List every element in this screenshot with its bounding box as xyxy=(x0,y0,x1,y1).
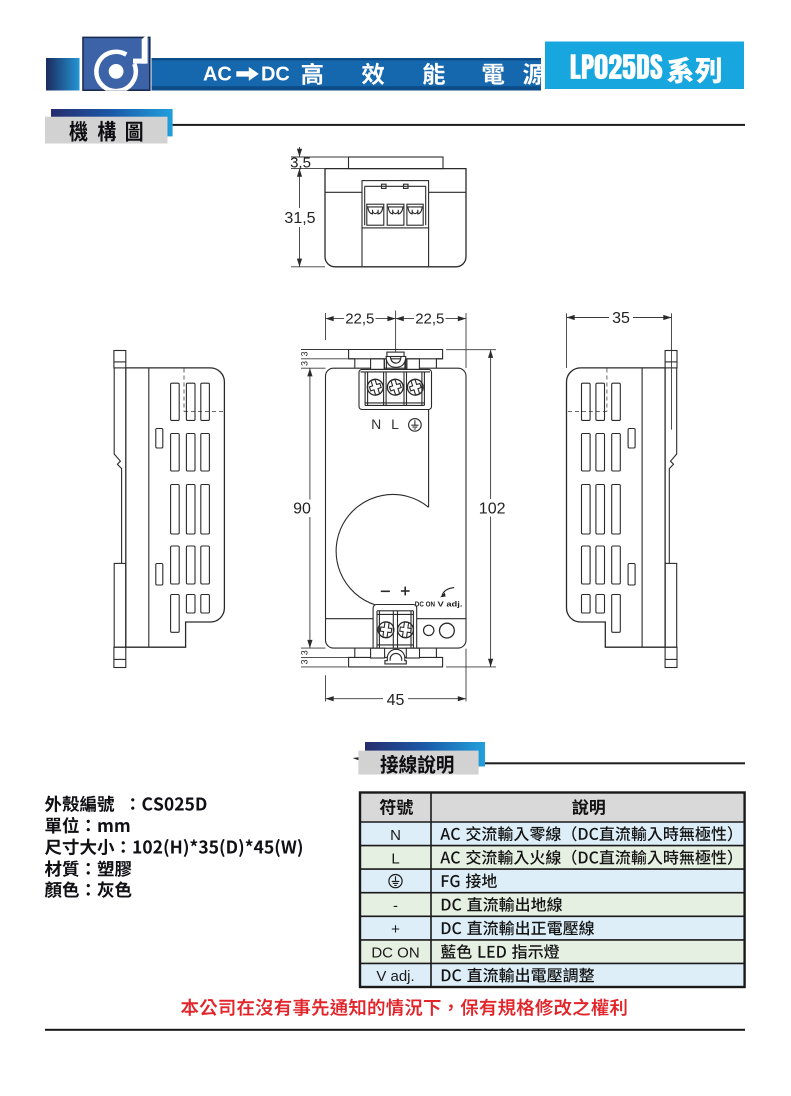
svg-text:3: 3 xyxy=(300,361,310,366)
svg-text:+: + xyxy=(391,921,400,938)
svg-text:102: 102 xyxy=(479,501,506,518)
svg-text:V adj.: V adj. xyxy=(438,599,463,608)
svg-text:22,5: 22,5 xyxy=(415,310,444,327)
svg-text:31,5: 31,5 xyxy=(284,210,315,227)
svg-text:90: 90 xyxy=(293,501,311,518)
svg-text:3: 3 xyxy=(300,351,310,356)
svg-text:AC: AC xyxy=(203,63,232,85)
svg-text:35: 35 xyxy=(612,310,630,327)
svg-text:DC: DC xyxy=(261,63,290,85)
svg-text:N: N xyxy=(390,827,401,844)
svg-text:V adj.: V adj. xyxy=(376,968,414,985)
svg-text:N: N xyxy=(371,416,381,432)
svg-text:22,5: 22,5 xyxy=(345,310,374,327)
svg-text:-: - xyxy=(393,898,398,915)
svg-text:DC ON: DC ON xyxy=(371,945,419,962)
svg-text:3: 3 xyxy=(300,659,310,664)
svg-text:3: 3 xyxy=(300,650,310,655)
svg-text:45: 45 xyxy=(387,692,405,709)
svg-text:L: L xyxy=(391,850,399,867)
svg-text:DC ON: DC ON xyxy=(415,599,435,608)
svg-text:L: L xyxy=(391,416,399,432)
svg-text:3,5: 3,5 xyxy=(290,155,311,172)
